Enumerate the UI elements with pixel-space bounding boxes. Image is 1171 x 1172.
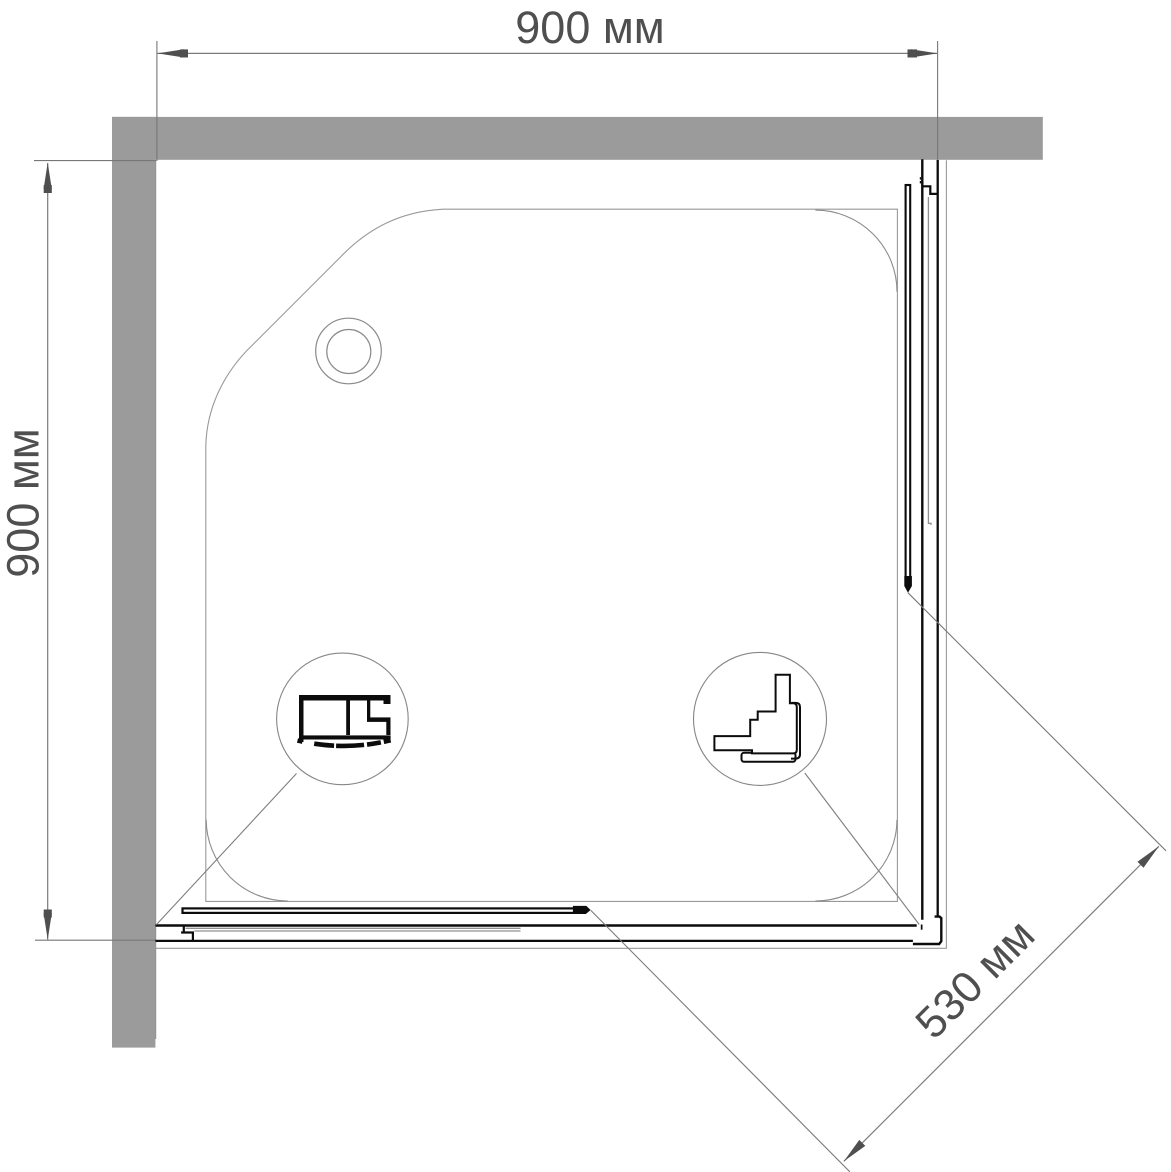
svg-text:900 мм: 900 мм [0, 428, 49, 577]
svg-text:900 мм: 900 мм [515, 2, 664, 53]
